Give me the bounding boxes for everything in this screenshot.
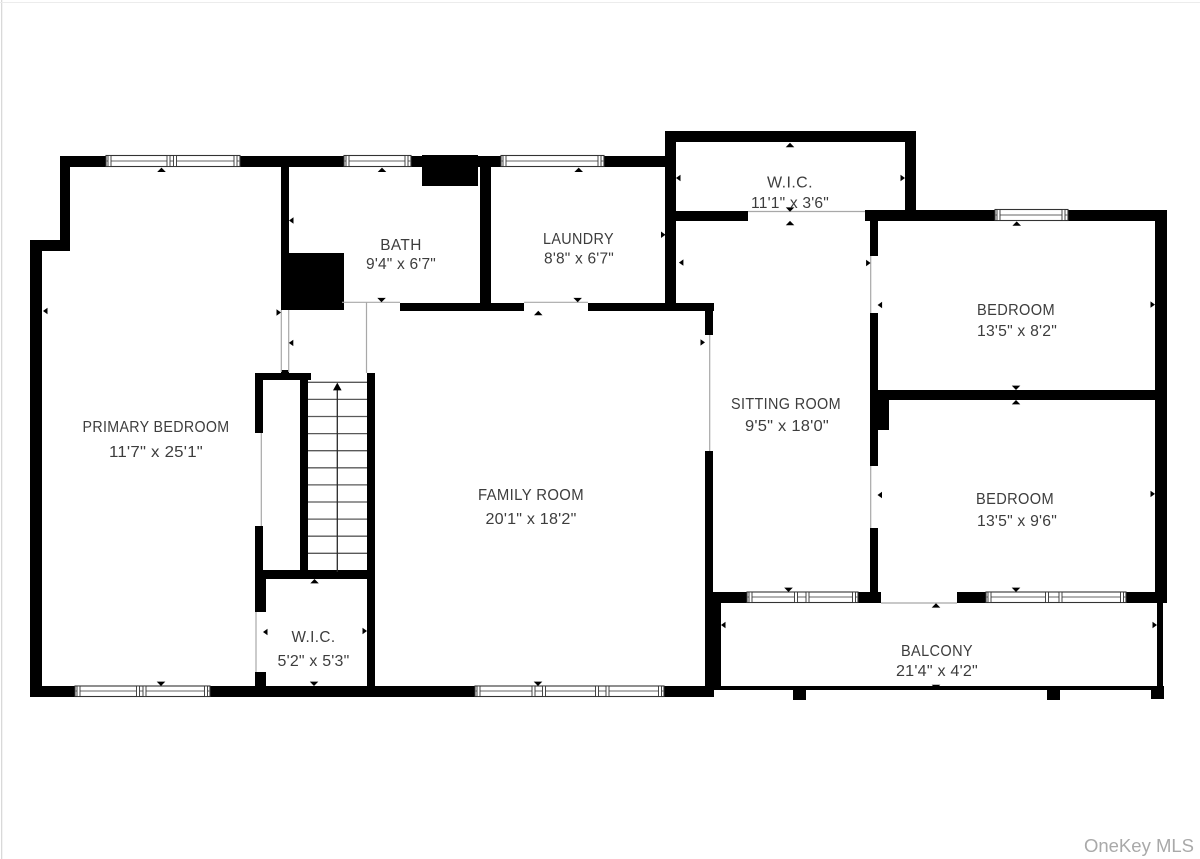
svg-text:13'5" x 9'6": 13'5" x 9'6" bbox=[977, 513, 1057, 530]
svg-text:11'1" x 3'6": 11'1" x 3'6" bbox=[751, 195, 829, 212]
svg-text:FAMILY ROOM: FAMILY ROOM bbox=[478, 487, 584, 504]
svg-text:BEDROOM: BEDROOM bbox=[976, 491, 1054, 508]
svg-text:20'1" x 18'2": 20'1" x 18'2" bbox=[486, 511, 577, 528]
svg-text:8'8" x 6'7": 8'8" x 6'7" bbox=[544, 250, 614, 267]
svg-text:W.I.C.: W.I.C. bbox=[292, 629, 336, 646]
svg-text:W.I.C.: W.I.C. bbox=[767, 174, 813, 191]
svg-text:9'5" x 18'0": 9'5" x 18'0" bbox=[745, 418, 829, 435]
svg-text:LAUNDRY: LAUNDRY bbox=[543, 231, 614, 248]
svg-text:BALCONY: BALCONY bbox=[901, 643, 973, 660]
svg-text:5'2" x 5'3": 5'2" x 5'3" bbox=[278, 653, 350, 670]
svg-text:SITTING ROOM: SITTING ROOM bbox=[731, 396, 841, 413]
svg-text:9'4" x 6'7": 9'4" x 6'7" bbox=[366, 256, 436, 273]
svg-text:BATH: BATH bbox=[380, 237, 422, 254]
svg-text:BEDROOM: BEDROOM bbox=[977, 302, 1055, 319]
svg-text:OneKey MLS: OneKey MLS bbox=[1084, 835, 1194, 856]
svg-text:21'4" x 4'2": 21'4" x 4'2" bbox=[896, 663, 978, 680]
svg-text:13'5" x 8'2": 13'5" x 8'2" bbox=[977, 323, 1057, 340]
svg-text:11'7" x 25'1": 11'7" x 25'1" bbox=[109, 444, 203, 461]
svg-text:PRIMARY BEDROOM: PRIMARY BEDROOM bbox=[83, 419, 230, 436]
